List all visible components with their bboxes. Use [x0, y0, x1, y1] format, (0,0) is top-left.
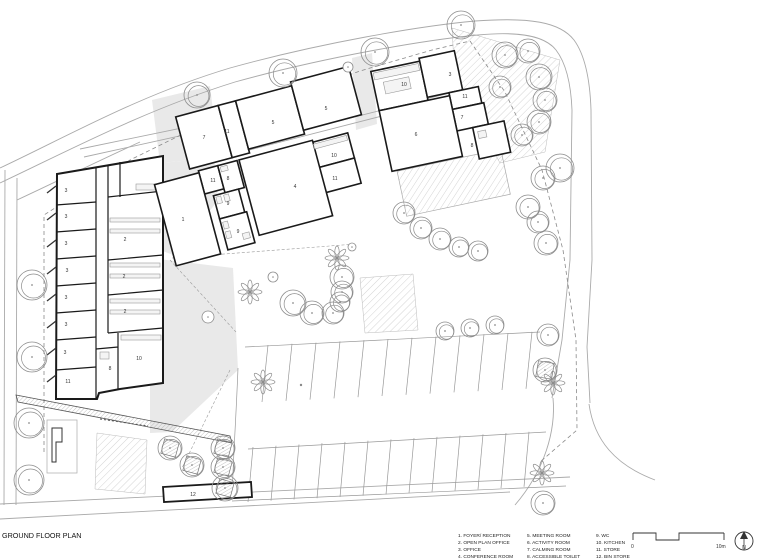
room-label: 11: [462, 94, 467, 100]
tree-icon: [531, 491, 555, 515]
fin: [47, 375, 56, 382]
room-label: 11: [210, 178, 215, 184]
facade-fins: [47, 186, 56, 382]
scale-start-label: 0: [631, 544, 634, 550]
tree-icon: [280, 290, 306, 316]
tree-icon: [429, 228, 451, 250]
room-label: 11: [65, 379, 70, 385]
room-label: 8: [227, 176, 230, 182]
tree-icon: [449, 237, 469, 257]
legend-item: 7. CALMING ROOM: [527, 547, 570, 553]
drawing-sheet: 3333333112221087115510114118991103117681…: [0, 0, 760, 558]
legend-item: 10. KITCHEN: [596, 540, 626, 546]
fin: [47, 321, 56, 328]
tree-icon: [534, 231, 558, 255]
plant-icon: [530, 461, 554, 485]
stall-line: [430, 337, 436, 394]
room-label: 3: [449, 72, 452, 78]
room-label: 10: [331, 153, 337, 159]
room-label: 2: [124, 309, 127, 315]
fin: [47, 213, 56, 220]
tree-icon: [361, 38, 389, 66]
stall-line: [454, 335, 460, 392]
tree-icon: [211, 436, 235, 460]
room-label: 3: [65, 188, 68, 194]
room-label: 3: [65, 322, 68, 328]
stall-line: [363, 441, 368, 496]
stall-line: [317, 443, 322, 498]
room-label: 4: [294, 184, 297, 190]
room-label: 7: [461, 115, 464, 121]
room-label: 10: [401, 82, 407, 88]
bin-store: [163, 482, 252, 502]
tree-icon: [516, 195, 540, 219]
legend-item: 3. OFFICE: [458, 547, 481, 553]
room-label: 1: [182, 217, 185, 223]
tree-icon: [410, 217, 432, 239]
legend-item: 12. BIN STORE: [596, 554, 630, 558]
stall-line: [340, 442, 345, 497]
room-label: 11: [224, 129, 229, 135]
scale-end-label: 10m: [716, 544, 726, 550]
tree-icon: [17, 342, 47, 372]
room-label: 12: [190, 492, 196, 498]
tree-icon: [468, 241, 488, 261]
fin: [47, 240, 56, 247]
north-label: N: [742, 545, 746, 551]
room-label: 7: [203, 135, 206, 141]
room-label: 3: [64, 350, 67, 356]
room-label: 5: [272, 120, 275, 126]
tree-icon: [17, 270, 47, 300]
legend-item: 8. ACCESSIBLE TOILET: [527, 554, 580, 558]
stall-line: [286, 344, 292, 401]
stall-line: [334, 341, 340, 398]
fin: [47, 267, 56, 274]
room-label: 8: [109, 366, 112, 372]
room-label: 3: [65, 214, 68, 220]
page-title: GROUND FLOOR PLAN: [2, 531, 81, 540]
room-label: 3: [65, 241, 68, 247]
north-arrow: N: [735, 531, 753, 551]
legend-item: 6. ACTIVITY ROOM: [527, 540, 570, 546]
tree-icon: [436, 322, 454, 340]
room-label: 5: [325, 106, 328, 112]
room-label: 6: [415, 132, 418, 138]
room-label: 9: [227, 201, 230, 207]
room-label: 2: [123, 274, 126, 280]
tree-icon: [461, 319, 479, 337]
stall-line: [526, 332, 532, 389]
fin: [47, 348, 56, 355]
legend-item: 11. STORE: [596, 547, 620, 553]
tree-icon: [486, 316, 504, 334]
tree-icon: [300, 301, 324, 325]
legend-item: 5. MEETING ROOM: [527, 533, 570, 539]
legend-item: 2. OPEN PLAN OFFICE: [458, 540, 510, 546]
legend: 1. FOYER/ RECEPTION 2. OPEN PLAN OFFICE …: [458, 533, 630, 558]
tree-icon: [322, 302, 344, 324]
fin: [47, 294, 56, 301]
room-label: 9: [237, 229, 240, 235]
room-label: 3: [65, 295, 68, 301]
floor-plan-drawing: 3333333112221087115510114118991103117681…: [0, 0, 760, 558]
parking-stalls: [248, 332, 532, 502]
fin: [47, 186, 56, 193]
stall-line: [294, 444, 299, 499]
room-label: 8: [471, 143, 474, 149]
stall-line: [478, 334, 484, 391]
stall-line: [271, 446, 276, 501]
tree-icon: [14, 408, 44, 438]
play-area: [47, 420, 77, 473]
stall-line: [310, 343, 316, 400]
tree-icon: [269, 59, 297, 87]
parking-area: [232, 332, 566, 502]
tree-icon: [531, 166, 555, 190]
plant-icon: [238, 280, 262, 304]
legend-item: 9. WC: [596, 533, 610, 539]
tree-icon: [158, 436, 182, 460]
stall-line: [502, 333, 508, 390]
room-label: 3: [66, 268, 69, 274]
tree-icon: [14, 465, 44, 495]
tree-icon: [537, 324, 559, 346]
legend-item: 4. CONFERENCE ROOM: [458, 554, 513, 558]
room-label: 11: [332, 176, 337, 182]
parking-dot: [300, 384, 302, 386]
scale-bar: 0 10m: [631, 533, 726, 550]
room-label: 10: [136, 356, 142, 362]
legend-item: 1. FOYER/ RECEPTION: [458, 533, 511, 539]
stall-line: [406, 338, 412, 395]
stall-line: [358, 340, 364, 397]
stall-line: [382, 339, 388, 396]
room-label: 2: [124, 237, 127, 243]
tree-icon: [527, 211, 549, 233]
stall-line: [386, 439, 391, 494]
